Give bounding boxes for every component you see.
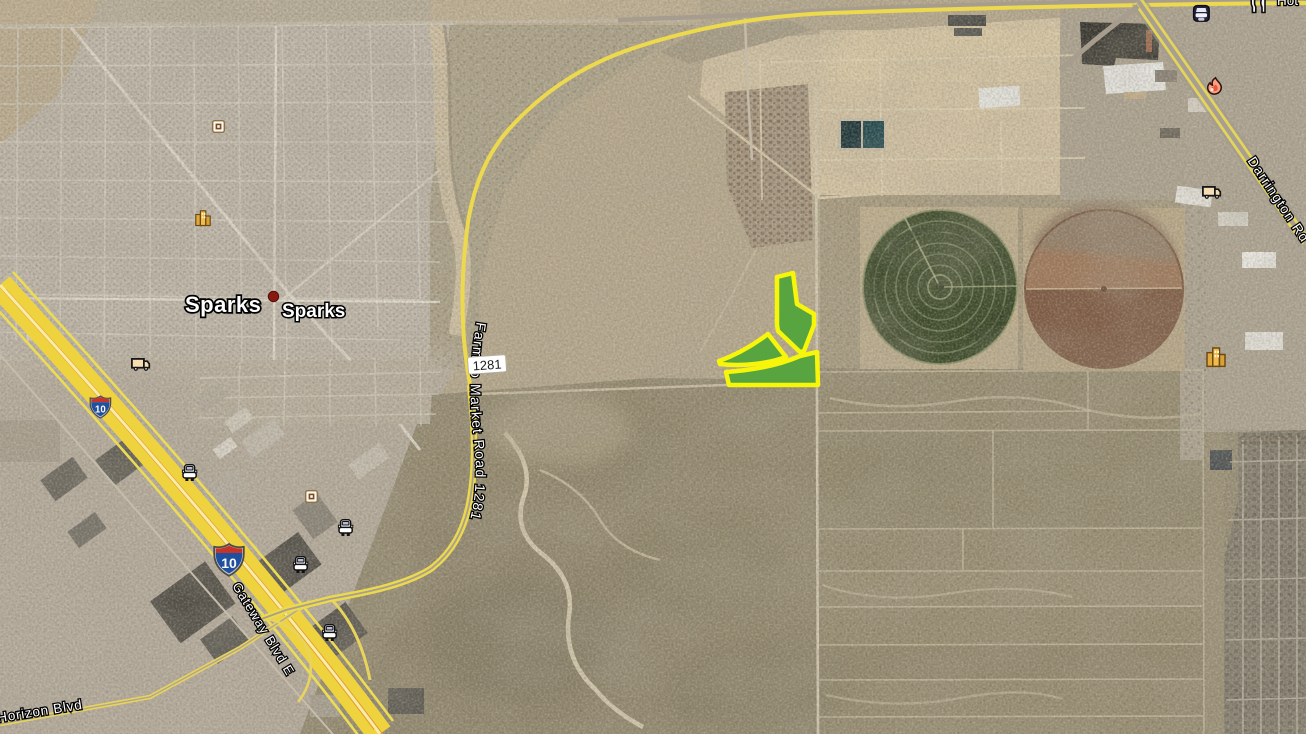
svg-text:1281: 1281 — [472, 357, 502, 374]
svg-text:Hot: Hot — [1277, 0, 1298, 8]
svg-text:Sparks: Sparks — [185, 292, 261, 317]
svg-text:Sparks: Sparks — [282, 301, 345, 322]
